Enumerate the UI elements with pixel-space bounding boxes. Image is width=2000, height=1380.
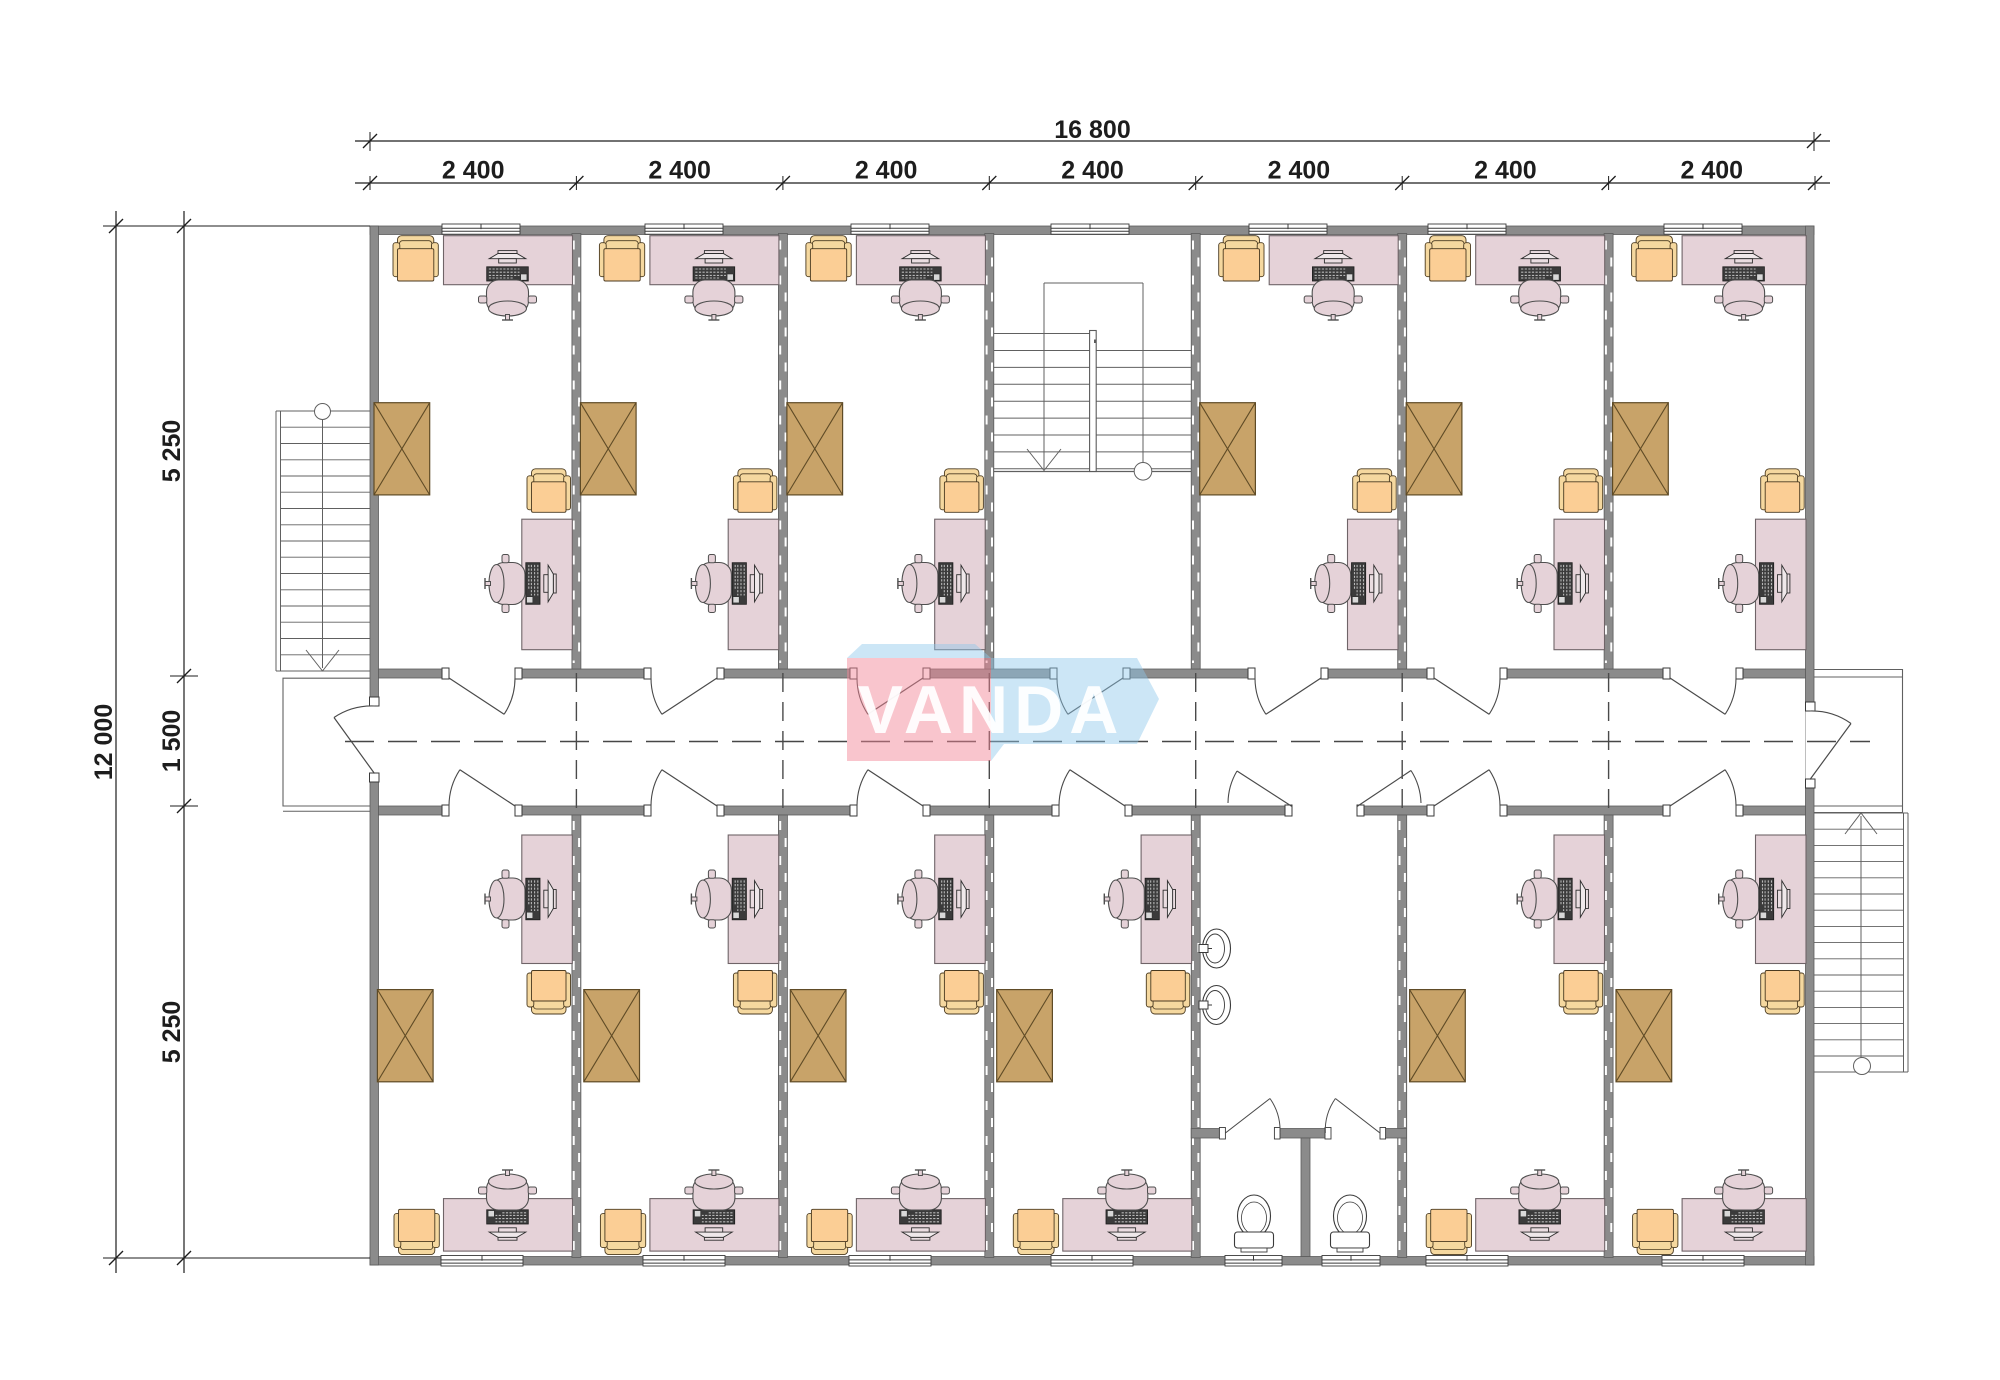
svg-text:2 400: 2 400 [1681, 157, 1744, 185]
svg-text:5 250: 5 250 [158, 1001, 186, 1064]
svg-text:2 400: 2 400 [1474, 157, 1537, 185]
svg-text:1 500: 1 500 [158, 710, 186, 773]
svg-text:VANDA: VANDA [858, 672, 1125, 748]
svg-text:5 250: 5 250 [158, 420, 186, 483]
svg-text:2 400: 2 400 [442, 157, 505, 185]
svg-text:2 400: 2 400 [648, 157, 711, 185]
svg-text:2 400: 2 400 [1268, 157, 1331, 185]
svg-text:2 400: 2 400 [855, 157, 918, 185]
svg-text:12 000: 12 000 [90, 704, 118, 780]
svg-text:16 800: 16 800 [1054, 116, 1130, 144]
svg-text:2 400: 2 400 [1061, 157, 1124, 185]
